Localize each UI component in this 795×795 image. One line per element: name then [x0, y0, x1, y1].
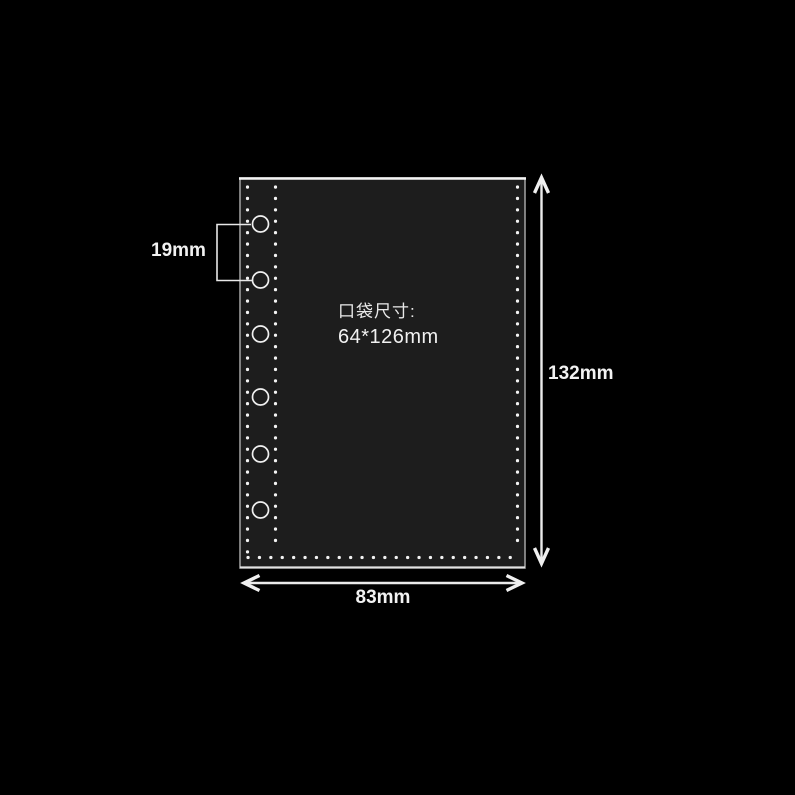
- hole-spacing-label: 19mm: [151, 241, 206, 260]
- width-label: 83mm: [242, 588, 524, 607]
- pocket-diagram: [0, 0, 795, 795]
- height-label: 132mm: [548, 364, 614, 383]
- product-dimension-image: 19mm 132mm 83mm 口袋尺寸: 64*126mm: [0, 0, 795, 795]
- height-dimension-arrow: [535, 178, 549, 564]
- pocket-size-caption-value: 64*126mm: [338, 327, 439, 347]
- pocket-sleeve: [239, 178, 526, 568]
- pocket-size-caption: 口袋尺寸: 64*126mm: [338, 303, 439, 347]
- pocket-body: [240, 178, 525, 568]
- pocket-size-caption-title: 口袋尺寸:: [338, 303, 439, 320]
